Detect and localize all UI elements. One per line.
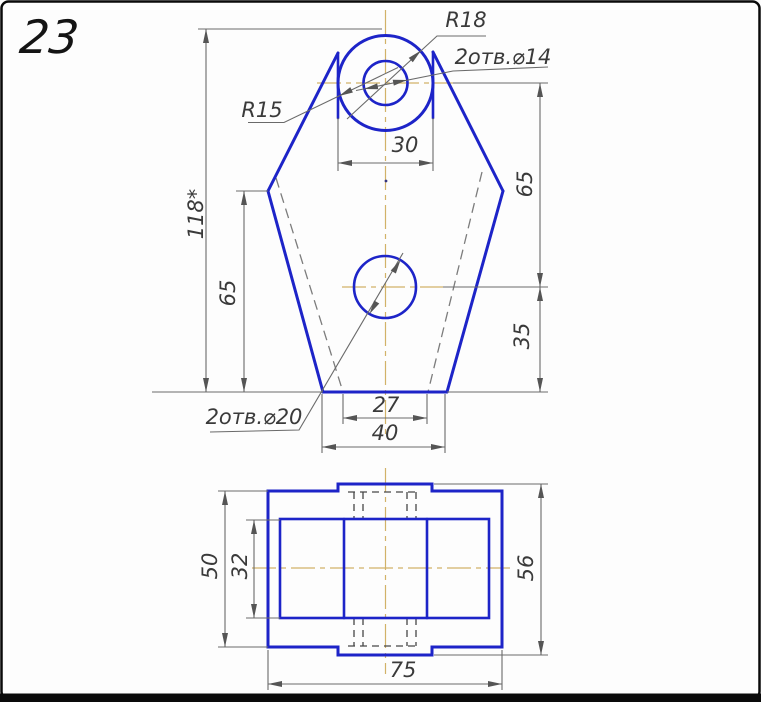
dim-arrow: [251, 604, 257, 618]
dim-arrow: [488, 681, 502, 687]
dim-inner-depth: 32: [228, 520, 280, 618]
top-view: 50 32 56 75: [198, 468, 548, 690]
dim-arrow: [413, 415, 427, 421]
dim-text-65-right: 65: [513, 171, 537, 198]
frame-bottom-bar: [0, 694, 761, 702]
dim-text-35: 35: [510, 323, 534, 350]
dim-arrow: [537, 83, 543, 97]
label-R15: R15: [241, 98, 282, 122]
top-view-hidden-edges: [348, 492, 418, 646]
dim-arrow: [251, 520, 257, 534]
dim-text-40: 40: [372, 421, 399, 445]
dim-overall-depth: 56: [434, 484, 548, 655]
dim-arrow: [537, 273, 543, 287]
technical-drawing-canvas: 23: [0, 0, 761, 702]
dim-text-30: 30: [392, 133, 419, 157]
drawing-page: 23: [0, 0, 761, 702]
hidden-edge-left: [276, 178, 343, 392]
page-frame: [0, 2, 761, 702]
dim-arrow: [537, 378, 543, 392]
dim-arrow: [537, 287, 543, 301]
top-view-centerlines: [252, 468, 513, 674]
label-R18: R18: [445, 8, 486, 32]
leader-neck-radius: R15: [241, 68, 398, 123]
dim-arrow: [538, 641, 544, 655]
dim-arrow: [322, 444, 336, 450]
dim-arrow: [343, 415, 357, 421]
dim-arrow: [431, 444, 445, 450]
dim-text-27: 27: [373, 393, 400, 417]
dim-arrow: [241, 191, 247, 205]
dim-text-50: 50: [198, 553, 222, 580]
frame-border: [2, 2, 760, 699]
dim-arrow: [222, 491, 228, 505]
dim-arrow: [419, 160, 433, 166]
dim-arrow: [222, 633, 228, 647]
leader-arrow: [393, 77, 408, 86]
dim-text-118: 118*: [184, 189, 208, 240]
dim-text-75: 75: [390, 658, 417, 682]
figure-number: 23: [17, 10, 81, 64]
centerline-dot: [385, 180, 388, 183]
label-2otv-d20: 2отв.⌀20: [206, 405, 303, 429]
dim-arrow: [203, 29, 209, 43]
dim-arrow: [241, 378, 247, 392]
dim-text-56: 56: [514, 555, 538, 582]
dim-arrow: [538, 484, 544, 498]
front-view-hidden-edges: [276, 172, 482, 392]
dim-arrow: [203, 378, 209, 392]
dim-text-65-left: 65: [216, 280, 240, 307]
lower-left-slant: [268, 191, 323, 392]
dim-arrow: [338, 160, 352, 166]
front-view: 118* 65 30 65: [152, 8, 551, 453]
dim-arrow: [268, 681, 282, 687]
lower-right-slant: [447, 191, 503, 392]
label-2otv-d14: 2отв.⌀14: [455, 45, 552, 69]
dim-text-32: 32: [228, 553, 252, 580]
dim-left-height: 65: [216, 191, 268, 392]
